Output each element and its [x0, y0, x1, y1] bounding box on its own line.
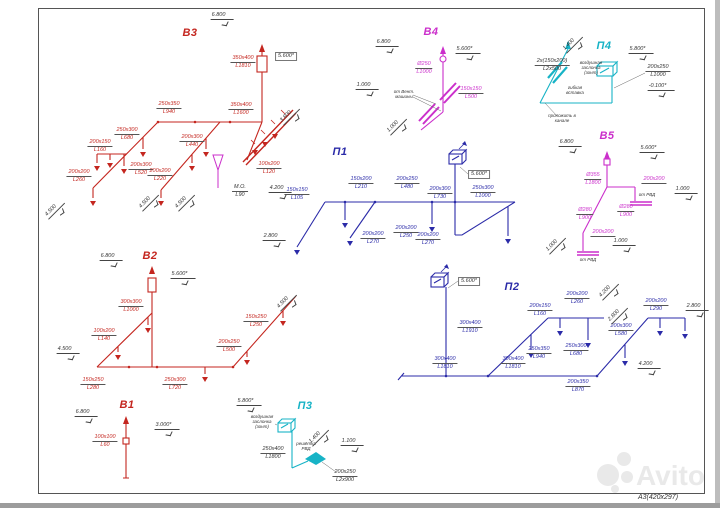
drawing-sheet: В3 В4 П4 В5 П1 П2 В2 В1 П3 350x400L1810 …: [0, 0, 720, 508]
elevation-mark: 5.600*: [456, 46, 481, 60]
duct-label: 200x200L290: [643, 298, 668, 312]
p4-leaders: [545, 73, 645, 116]
elevation-mark: 5.600*: [458, 277, 480, 286]
elevation-mark: 6.800: [376, 39, 399, 53]
svg-text:Avito: Avito: [636, 460, 705, 491]
duct-label: 200x300L730: [427, 186, 452, 200]
duct-label: 2х(150х200)L2х500: [535, 58, 570, 72]
duct-label: 350x400L1810: [230, 55, 255, 69]
duct-label: 300x400L1810: [432, 356, 457, 370]
p1-elev-leader: [460, 167, 468, 174]
elevation-mark: 4.200: [638, 361, 661, 375]
elevation-mark: 6.800: [211, 12, 234, 26]
duct-label: 300x400L1910: [457, 320, 482, 334]
system-title-b3: В3: [182, 28, 197, 39]
duct-label: 250x350L940: [526, 346, 551, 360]
elevation-mark: 4.500: [57, 346, 80, 360]
elevation-mark: 1.000: [613, 238, 636, 252]
elevation-mark: 5.600*: [275, 52, 297, 61]
duct-label: Ø280L900: [617, 204, 634, 218]
duct-label: 200x200L270: [415, 232, 440, 246]
elevation-mark: 5.800*: [237, 398, 262, 412]
duct-label: 200x200L260: [66, 169, 91, 183]
duct-label: 200x250L480: [394, 176, 419, 190]
avito-watermark: Avito: [594, 448, 714, 499]
duct-label: 200x200L220: [147, 168, 172, 182]
duct-label: 200x200L260: [564, 291, 589, 305]
duct-label: 200x350L870: [565, 379, 590, 393]
elevation-mark: 1.000: [675, 186, 698, 200]
annotation-note: гибкая вставка: [566, 85, 584, 95]
duct-label: 300x400L1810: [500, 356, 525, 370]
system-title-b1: В1: [119, 400, 134, 411]
elevation-mark: 6.800: [75, 409, 98, 423]
duct-label: 250x300L720: [162, 377, 187, 391]
duct-label: 100x200L120: [256, 161, 281, 175]
elevation-mark: 2.800: [686, 303, 709, 317]
b3-local-suction-symbol: [213, 155, 223, 188]
elevation-mark: 1.100: [341, 438, 364, 452]
duct-label: Ø355L1800: [584, 172, 601, 186]
duct-label: 150x250L280: [80, 377, 105, 391]
duct-label: 200x250L1000: [645, 64, 670, 78]
system-title-b5: В5: [599, 131, 614, 142]
duct-label: 250x300L1000: [470, 185, 495, 199]
duct-label: Ø250L1000: [415, 61, 432, 75]
duct-label: 300x300L1000: [118, 299, 143, 313]
duct-label: 200x200L270: [360, 231, 385, 245]
background-edge: [715, 0, 720, 508]
elevation-mark: 5.600*: [640, 145, 665, 159]
system-title-b2: В2: [142, 251, 157, 262]
duct-label: 150x150L500: [458, 86, 483, 100]
duct-label: 200x250L2x900: [332, 469, 357, 483]
system-title-p1: П1: [332, 147, 347, 158]
duct-label: 200x300L440: [179, 134, 204, 148]
b5-riser-arrow: [604, 151, 610, 159]
duct-label: 100x100L60: [92, 434, 117, 448]
duct-label: 250x300L680: [114, 127, 139, 141]
b4-riser-arrow: [440, 46, 446, 54]
duct-label: 200x200: [590, 229, 615, 237]
duct-label: 250x300L680: [563, 343, 588, 357]
duct-label: 200x250L500: [216, 339, 241, 353]
duct-label: 150x250L250: [243, 314, 268, 328]
annotation-note: от РВД: [580, 257, 597, 262]
annotation-note: воздушная заслонка (зонт): [251, 414, 274, 429]
b1-riser-arrow: [123, 416, 129, 424]
duct-label: 200x150L160: [527, 303, 552, 317]
elevation-mark: 1.000: [356, 82, 379, 96]
elevation-mark: -0.100*: [648, 83, 675, 97]
annotation-note: от Вент. машины: [394, 89, 414, 99]
system-title-p2: П2: [504, 282, 519, 293]
system-title-p4: П4: [596, 41, 611, 52]
elevation-mark: 3.000*: [155, 422, 180, 436]
system-title-p3: П3: [297, 401, 312, 412]
duct-label: 150x150L105: [284, 187, 309, 201]
elevation-mark: 5.800*: [629, 46, 654, 60]
annotation-note: воздушная заслонка (зонт): [580, 60, 603, 75]
duct-label: 200x150L160: [87, 139, 112, 153]
elevation-mark: 5.600*: [171, 271, 196, 285]
system-b1-ducts: [123, 424, 129, 478]
elevation-mark: 6.800: [100, 253, 123, 267]
annotation-note: от РВД: [639, 192, 656, 197]
duct-label: 350x400L1600: [228, 102, 253, 116]
duct-label: 150x200L210: [348, 176, 373, 190]
background-edge: [0, 503, 720, 508]
p2-elev-leader: [448, 281, 458, 288]
duct-label: 100x200L140: [91, 328, 116, 342]
system-title-b4: В4: [423, 27, 438, 38]
elevation-mark: 2.800: [263, 233, 286, 247]
duct-label: 250x350L940: [156, 101, 181, 115]
duct-label: 250x400L1800: [260, 446, 285, 460]
local-suction-label: М.О.L90: [232, 184, 248, 198]
duct-label: 200x200: [641, 176, 666, 184]
elevation-mark: 5.600*: [468, 170, 490, 179]
elevation-mark: 6.800: [559, 139, 582, 153]
avito-logo-icon: Avito: [594, 448, 714, 494]
annotation-note: проложить в канале: [548, 113, 576, 123]
duct-label: Ø280L900: [576, 207, 593, 221]
